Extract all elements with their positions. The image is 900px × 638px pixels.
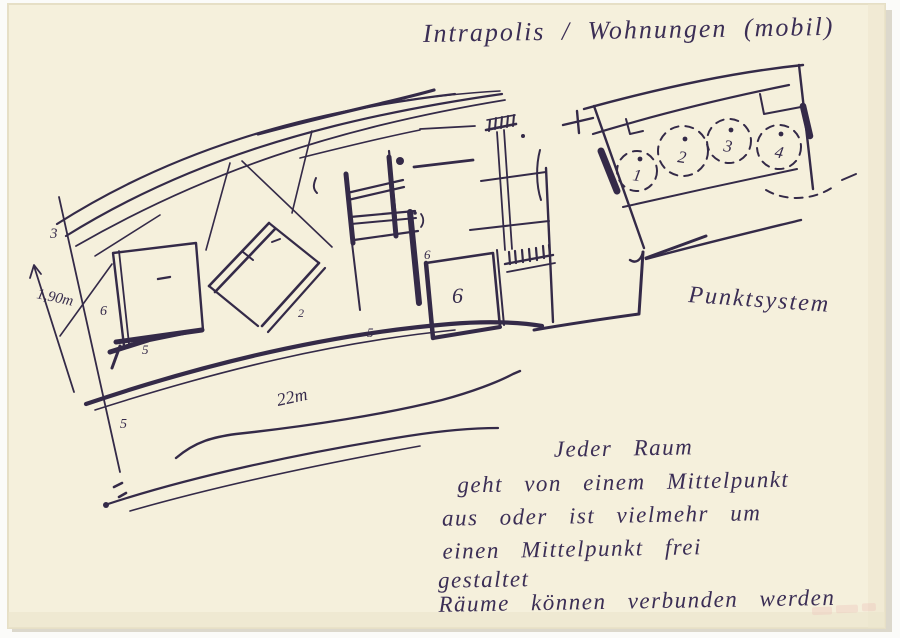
- point-center-dot: [729, 128, 734, 133]
- note-line-1: Jeder Raum: [554, 434, 694, 461]
- number-below-band: 5: [120, 417, 127, 432]
- point-center-dot: [779, 132, 784, 137]
- point-center-dot: [683, 137, 688, 142]
- number-room-mid-bottom: 5: [367, 325, 374, 340]
- scanned-sketch-page: Intrapolis / Wohnungen (mobil) Punktsyst…: [0, 0, 900, 638]
- number-room-a-bottom: 5: [142, 342, 149, 357]
- point-center-dot: [638, 157, 643, 162]
- number-room-a-side: 6: [100, 304, 107, 319]
- stamp-mark: [836, 605, 858, 614]
- ink-blob: [396, 157, 404, 165]
- ink-dot: [413, 211, 417, 215]
- stamp-mark: [812, 606, 832, 615]
- ink-dot: [521, 134, 525, 138]
- note-line-5: gestaltet: [438, 566, 530, 593]
- paper-edge-shade-right: [868, 4, 885, 628]
- paper-sheet: [8, 4, 885, 628]
- stamp-mark: [862, 603, 876, 611]
- ink-blob: [103, 502, 109, 508]
- number-room-b: 2: [298, 306, 304, 320]
- number-band-left: 3: [49, 226, 58, 242]
- note-line-4: einen Mittelpunkt frei: [442, 534, 702, 564]
- number-room-e-small: 6: [424, 247, 431, 262]
- number-room-e-big: 6: [452, 283, 463, 308]
- sketch-canvas: Intrapolis / Wohnungen (mobil) Punktsyst…: [0, 0, 900, 638]
